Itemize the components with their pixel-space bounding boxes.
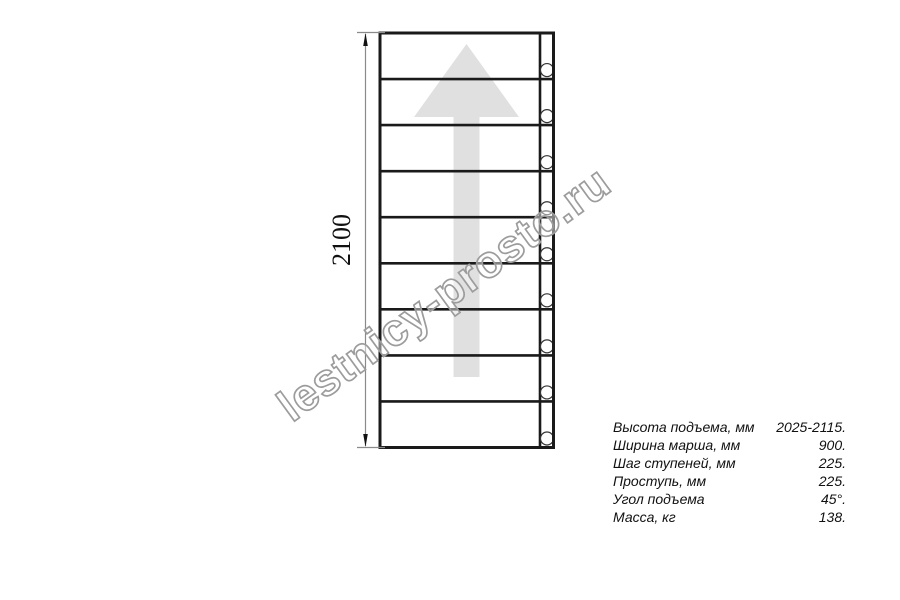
spec-label: Угол подъема [613, 490, 705, 508]
mount-hole-circle [541, 340, 554, 353]
height-dimension-label: 2100 [327, 214, 356, 266]
spec-label: Ширина марша, мм [613, 436, 740, 454]
spec-row-mass: Масса, кг 138. [613, 508, 846, 526]
spec-value: 2025-2115. [776, 418, 846, 436]
stair-drawing-page: 2100 lestnicy-prosto.ru Высота подъема, … [0, 0, 900, 600]
spec-row-height: Высота подъема, мм 2025-2115. [613, 418, 846, 436]
mount-hole-circle [541, 432, 554, 445]
spec-row-step-pitch: Шаг ступеней, мм 225. [613, 454, 846, 472]
watermark-text: lestnicy-prosto.ru [268, 156, 620, 431]
spec-value: 138. [819, 508, 846, 526]
spec-row-tread: Проступь, мм 225. [613, 472, 846, 490]
spec-row-width: Ширина марша, мм 900. [613, 436, 846, 454]
spec-label: Масса, кг [613, 508, 676, 526]
spec-value: 900. [819, 436, 846, 454]
spec-label: Высота подъема, мм [613, 418, 755, 436]
spec-label: Шаг ступеней, мм [613, 454, 736, 472]
specs-table: Высота подъема, мм 2025-2115. Ширина мар… [613, 418, 846, 526]
mount-holes [541, 64, 554, 445]
spec-value: 225. [819, 454, 846, 472]
mount-hole-circle [541, 294, 554, 307]
spec-value: 225. [819, 472, 846, 490]
mount-hole-circle [541, 156, 554, 169]
mount-hole-circle [541, 64, 554, 77]
dimension-arrow-down-icon [363, 434, 368, 447]
dimension-arrow-up-icon [363, 33, 368, 46]
spec-row-angle: Угол подъема 45°. [613, 490, 846, 508]
mount-hole-circle [541, 110, 554, 123]
mount-hole-circle [541, 386, 554, 399]
spec-label: Проступь, мм [613, 472, 706, 490]
spec-value: 45°. [821, 490, 846, 508]
